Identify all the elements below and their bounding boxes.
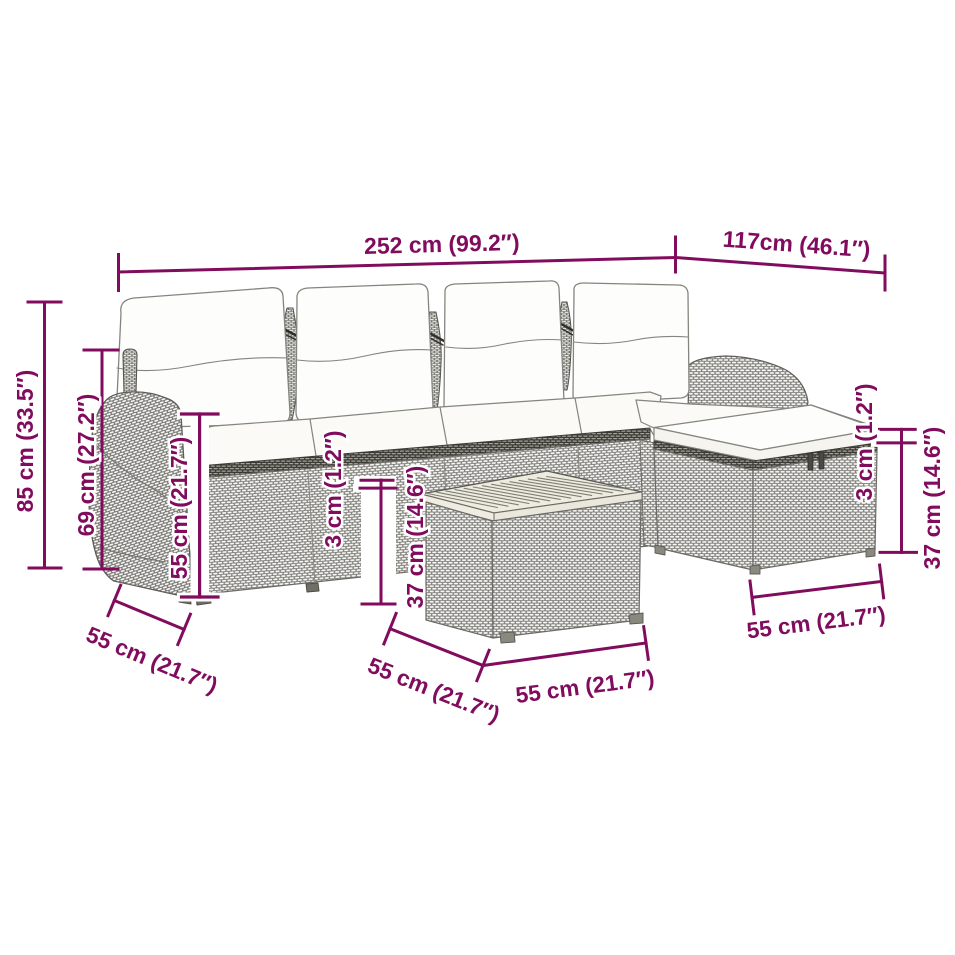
- svg-text:3 cm (1.2″): 3 cm (1.2″): [851, 383, 877, 500]
- svg-text:37 cm (14.6″): 37 cm (14.6″): [919, 427, 945, 570]
- svg-text:3 cm (1.2″): 3 cm (1.2″): [320, 430, 346, 547]
- svg-text:85 cm (33.5″): 85 cm (33.5″): [12, 370, 38, 513]
- svg-text:37 cm (14.6″): 37 cm (14.6″): [402, 466, 428, 609]
- svg-text:55 cm (21.7″): 55 cm (21.7″): [166, 437, 192, 580]
- svg-text:69 cm (27.2″): 69 cm (27.2″): [73, 394, 99, 537]
- svg-text:252 cm (99.2″): 252 cm (99.2″): [364, 229, 520, 259]
